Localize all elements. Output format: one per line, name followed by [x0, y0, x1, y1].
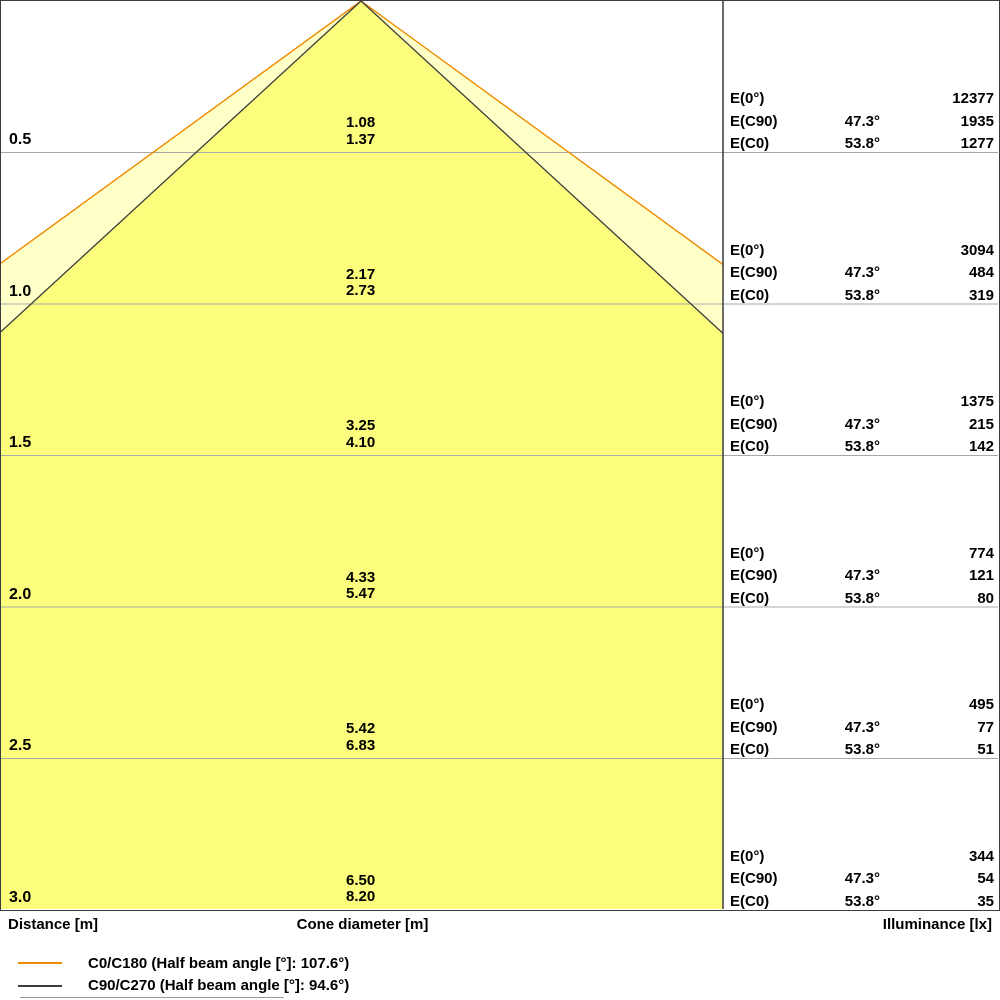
distance-label: 2.0 — [9, 585, 31, 605]
ec90-value: 121 — [880, 565, 994, 588]
cone-diameter-pair: 1.08 1.37 — [346, 115, 375, 148]
ec90-label: E(C90) — [730, 111, 815, 134]
c90-line-swatch — [18, 985, 62, 987]
e0-label: E(0°) — [730, 240, 815, 263]
cone-diameter-pair: 5.42 6.83 — [346, 721, 375, 754]
cone-diameter-c90: 5.42 — [346, 721, 375, 738]
illuminance-axis-label: Illuminance [lx] — [742, 916, 992, 934]
ec0-label: E(C0) — [730, 891, 815, 914]
cropped-bottom-rule — [20, 997, 284, 998]
ec90-label: E(C90) — [730, 717, 815, 740]
legend-item-c90: C90/C270 (Half beam angle [°]: 94.6°) — [18, 976, 349, 996]
legend-label-c90: C90/C270 (Half beam angle [°]: 94.6°) — [88, 977, 349, 994]
cone-diameter-c0: 8.20 — [346, 889, 375, 906]
ec90-angle: 47.3° — [815, 565, 880, 588]
cone-diameter-pair: 4.33 5.47 — [346, 570, 375, 603]
cone-diameter-pair: 2.17 2.73 — [346, 267, 375, 300]
ec0-value: 319 — [880, 285, 994, 308]
ec0-label: E(C0) — [730, 436, 815, 459]
distance-label: 1.5 — [9, 433, 31, 453]
ec0-angle: 53.8° — [815, 285, 880, 308]
e0-value: 3094 — [880, 240, 994, 263]
distance-label: 0.5 — [9, 130, 31, 150]
cone-diagram-page: 0.5 1.0 1.5 2.0 2.5 3.0 1.08 1.37 2.17 2… — [0, 0, 1000, 1000]
ec90-label: E(C90) — [730, 868, 815, 891]
ec0-label: E(C0) — [730, 739, 815, 762]
distance-axis-label: Distance [m] — [8, 916, 98, 934]
ec90-angle: 47.3° — [815, 868, 880, 891]
legend-label-c0: C0/C180 (Half beam angle [°]: 107.6°) — [88, 955, 349, 972]
cone-diameter-c90: 2.17 — [346, 267, 375, 284]
ec0-angle: 53.8° — [815, 133, 880, 156]
ec90-angle: 47.3° — [815, 414, 880, 437]
illuminance-block: E(0°)1375 E(C90)47.3°215 E(C0)53.8°142 — [730, 391, 994, 459]
distance-label: 3.0 — [9, 888, 31, 908]
ec90-value: 484 — [880, 262, 994, 285]
cone-diagram-chart: 0.5 1.0 1.5 2.0 2.5 3.0 1.08 1.37 2.17 2… — [0, 0, 1000, 911]
illuminance-block: E(0°)12377 E(C90)47.3°1935 E(C0)53.8°127… — [730, 88, 994, 156]
cone-diameter-c0: 2.73 — [346, 283, 375, 300]
e0-value: 12377 — [880, 88, 994, 111]
ec90-value: 215 — [880, 414, 994, 437]
ec90-value: 54 — [880, 868, 994, 891]
cone-diameter-pair: 6.50 8.20 — [346, 873, 375, 906]
e0-value: 774 — [880, 543, 994, 566]
cone-diameter-axis-label: Cone diameter [m] — [240, 916, 485, 934]
ec0-angle: 53.8° — [815, 891, 880, 914]
ec90-label: E(C90) — [730, 414, 815, 437]
illuminance-block: E(0°)3094 E(C90)47.3°484 E(C0)53.8°319 — [730, 240, 994, 308]
ec0-angle: 53.8° — [815, 588, 880, 611]
e0-label: E(0°) — [730, 846, 815, 869]
ec0-value: 1277 — [880, 133, 994, 156]
ec0-value: 51 — [880, 739, 994, 762]
ec90-label: E(C90) — [730, 262, 815, 285]
e0-value: 344 — [880, 846, 994, 869]
e0-label: E(0°) — [730, 391, 815, 414]
ec0-label: E(C0) — [730, 285, 815, 308]
illuminance-block: E(0°)495 E(C90)47.3°77 E(C0)53.8°51 — [730, 694, 994, 762]
ec90-angle: 47.3° — [815, 717, 880, 740]
distance-label: 2.5 — [9, 736, 31, 756]
ec0-value: 142 — [880, 436, 994, 459]
ec0-value: 80 — [880, 588, 994, 611]
legend-item-c0: C0/C180 (Half beam angle [°]: 107.6°) — [18, 953, 349, 973]
cone-diameter-pair: 3.25 4.10 — [346, 418, 375, 451]
cone-diameter-c90: 3.25 — [346, 418, 375, 435]
ec90-angle: 47.3° — [815, 262, 880, 285]
e0-label: E(0°) — [730, 543, 815, 566]
cone-diameter-c90: 1.08 — [346, 115, 375, 132]
c0-line-swatch — [18, 962, 62, 964]
ec0-label: E(C0) — [730, 588, 815, 611]
ec0-label: E(C0) — [730, 133, 815, 156]
cone-diameter-c90: 4.33 — [346, 570, 375, 587]
ec90-value: 1935 — [880, 111, 994, 134]
illuminance-block: E(0°)344 E(C90)47.3°54 E(C0)53.8°35 — [730, 846, 994, 914]
cone-diameter-c0: 4.10 — [346, 435, 375, 452]
ec0-angle: 53.8° — [815, 739, 880, 762]
e0-value: 1375 — [880, 391, 994, 414]
cone-diameter-c0: 5.47 — [346, 586, 375, 603]
distance-label: 1.0 — [9, 282, 31, 302]
ec0-value: 35 — [880, 891, 994, 914]
illuminance-block: E(0°)774 E(C90)47.3°121 E(C0)53.8°80 — [730, 543, 994, 611]
e0-value: 495 — [880, 694, 994, 717]
ec90-label: E(C90) — [730, 565, 815, 588]
e0-label: E(0°) — [730, 88, 815, 111]
ec90-angle: 47.3° — [815, 111, 880, 134]
cone-diameter-c90: 6.50 — [346, 873, 375, 890]
ec90-value: 77 — [880, 717, 994, 740]
cone-diameter-c0: 6.83 — [346, 738, 375, 755]
cone-diameter-c0: 1.37 — [346, 132, 375, 149]
ec0-angle: 53.8° — [815, 436, 880, 459]
e0-label: E(0°) — [730, 694, 815, 717]
